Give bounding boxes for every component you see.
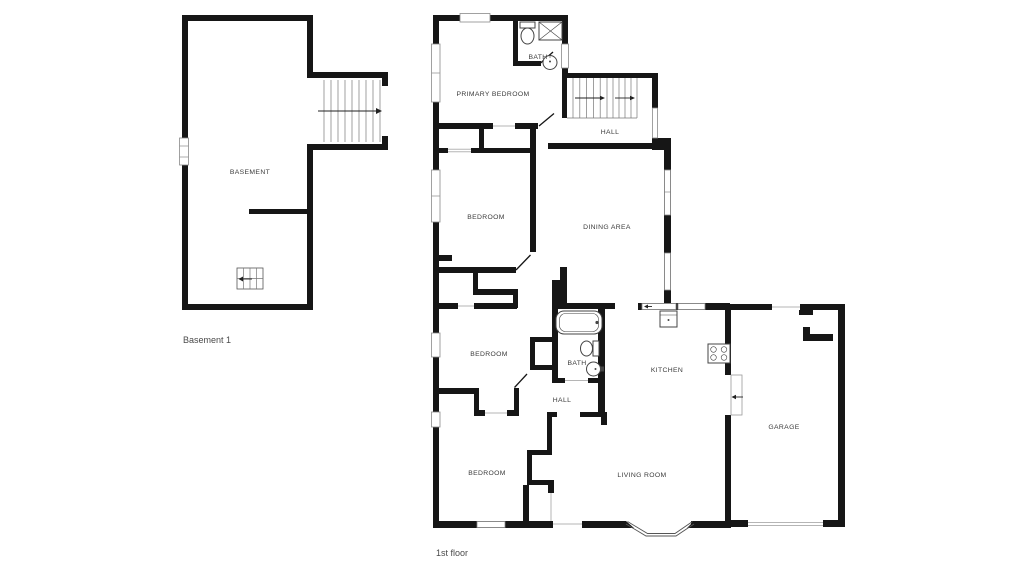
basement-plan: BASEMENT Basement 1 xyxy=(180,15,389,345)
room-label-hall-lower: HALL xyxy=(553,397,571,404)
floor-plan-svg: BASEMENT Basement 1 xyxy=(0,0,1024,575)
stairs-direction-arrow-icon xyxy=(600,96,605,100)
bay-window xyxy=(626,522,694,537)
room-label-hall-upper: HALL xyxy=(601,129,619,136)
caption-basement: Basement 1 xyxy=(183,335,231,345)
stairs-direction-arrow-icon xyxy=(376,108,382,114)
room-label-kitchen: KITCHEN xyxy=(651,367,683,374)
toilet-icon xyxy=(520,22,535,44)
room-label-bedroom-mid: BEDROOM xyxy=(467,214,505,221)
hall-stairs xyxy=(567,78,637,118)
toilet-icon xyxy=(581,341,600,356)
kitchen-fixtures xyxy=(644,305,730,364)
room-label-bedroom-lower: BEDROOM xyxy=(470,351,508,358)
caption-first-floor: 1st floor xyxy=(436,548,468,558)
garage-door-leaf xyxy=(731,375,743,415)
floor-plan-canvas: BASEMENT Basement 1 xyxy=(0,0,1024,575)
stove-icon xyxy=(708,344,730,363)
first-floor-plan: PRIMARY BEDROOM BATH HALL BEDROOM DINING… xyxy=(432,14,846,559)
kitchen-sink-icon xyxy=(660,311,677,327)
room-label-primary-bedroom: PRIMARY BEDROOM xyxy=(457,91,530,98)
bathtub-icon xyxy=(556,311,602,334)
room-label-bath-upper: BATH xyxy=(528,54,547,61)
room-label-bath-lower: BATH xyxy=(567,360,586,367)
room-label-garage: GARAGE xyxy=(768,424,799,431)
basement-walls xyxy=(182,15,388,310)
door-openings xyxy=(448,52,823,526)
room-label-basement: BASEMENT xyxy=(230,169,270,176)
room-label-dining-area: DINING AREA xyxy=(583,224,631,231)
shower-icon xyxy=(539,22,562,40)
basement-small-stairs xyxy=(237,268,263,289)
basement-stairs xyxy=(318,80,382,142)
room-label-living-room: LIVING ROOM xyxy=(617,472,666,479)
stairs-direction-arrow-icon xyxy=(630,96,635,100)
basement-window xyxy=(180,138,189,165)
room-label-bedroom-bottom: BEDROOM xyxy=(468,470,506,477)
